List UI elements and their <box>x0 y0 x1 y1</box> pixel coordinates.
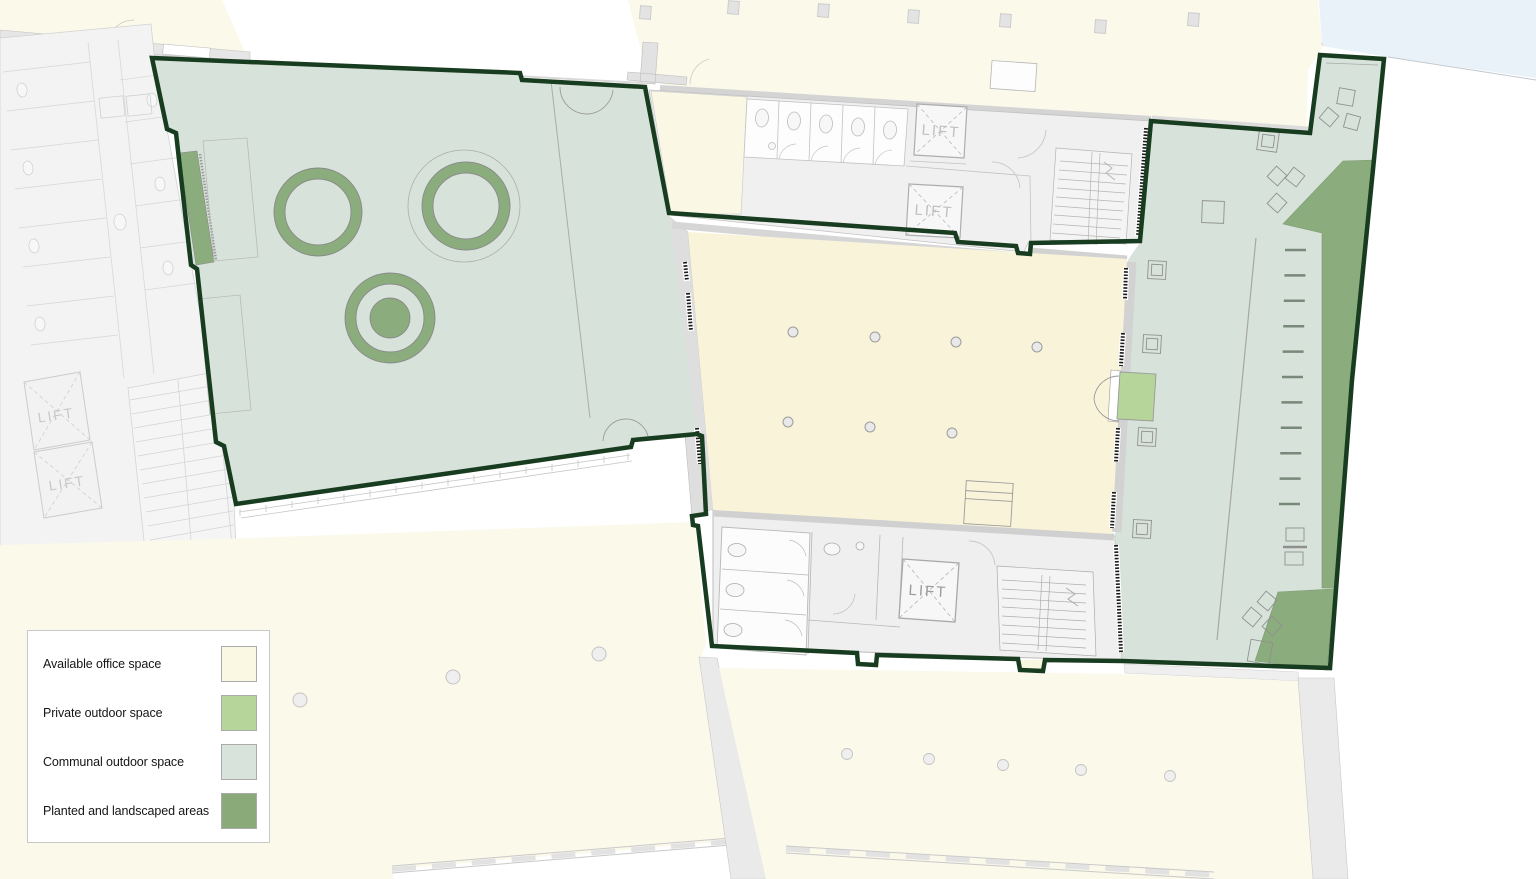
legend-swatch-communal <box>221 744 257 780</box>
lift-label-north-2: LIFT <box>914 202 954 222</box>
legend-label-office: Available office space <box>43 657 161 671</box>
legend-item-communal: Communal outdoor space <box>43 737 257 786</box>
ring-planter-3-center <box>370 298 410 338</box>
lift-label-south: LIFT <box>908 582 948 601</box>
top-core-stair <box>1050 148 1132 245</box>
legend-swatch-office <box>221 646 257 682</box>
legend-swatch-private <box>221 695 257 731</box>
roof-vent <box>990 60 1037 91</box>
legend-label-planted: Planted and landscaped areas <box>43 804 209 818</box>
bottom-core-stair <box>997 566 1096 656</box>
neighbor-south-paths <box>699 657 1348 879</box>
communal-garden-east <box>1115 55 1384 670</box>
lift-label-north-1: LIFT <box>921 122 961 142</box>
ring-planter-1 <box>274 168 362 256</box>
legend: Available office space Private outdoor s… <box>27 630 270 843</box>
terrace-fill <box>1117 372 1156 421</box>
legend-item-office: Available office space <box>43 639 257 688</box>
ring-planter-3 <box>345 273 435 363</box>
legend-swatch-planted <box>221 793 257 829</box>
legend-item-planted: Planted and landscaped areas <box>43 786 257 835</box>
office-fill <box>688 232 1127 534</box>
legend-label-communal: Communal outdoor space <box>43 755 184 769</box>
legend-label-private: Private outdoor space <box>43 706 163 720</box>
communal-west-fill <box>152 58 697 504</box>
office-area <box>688 232 1127 534</box>
floor-plan-page: LIFT LIFT LIFT LIFT LIFT Available offic… <box>0 0 1536 879</box>
legend-item-private: Private outdoor space <box>43 688 257 737</box>
